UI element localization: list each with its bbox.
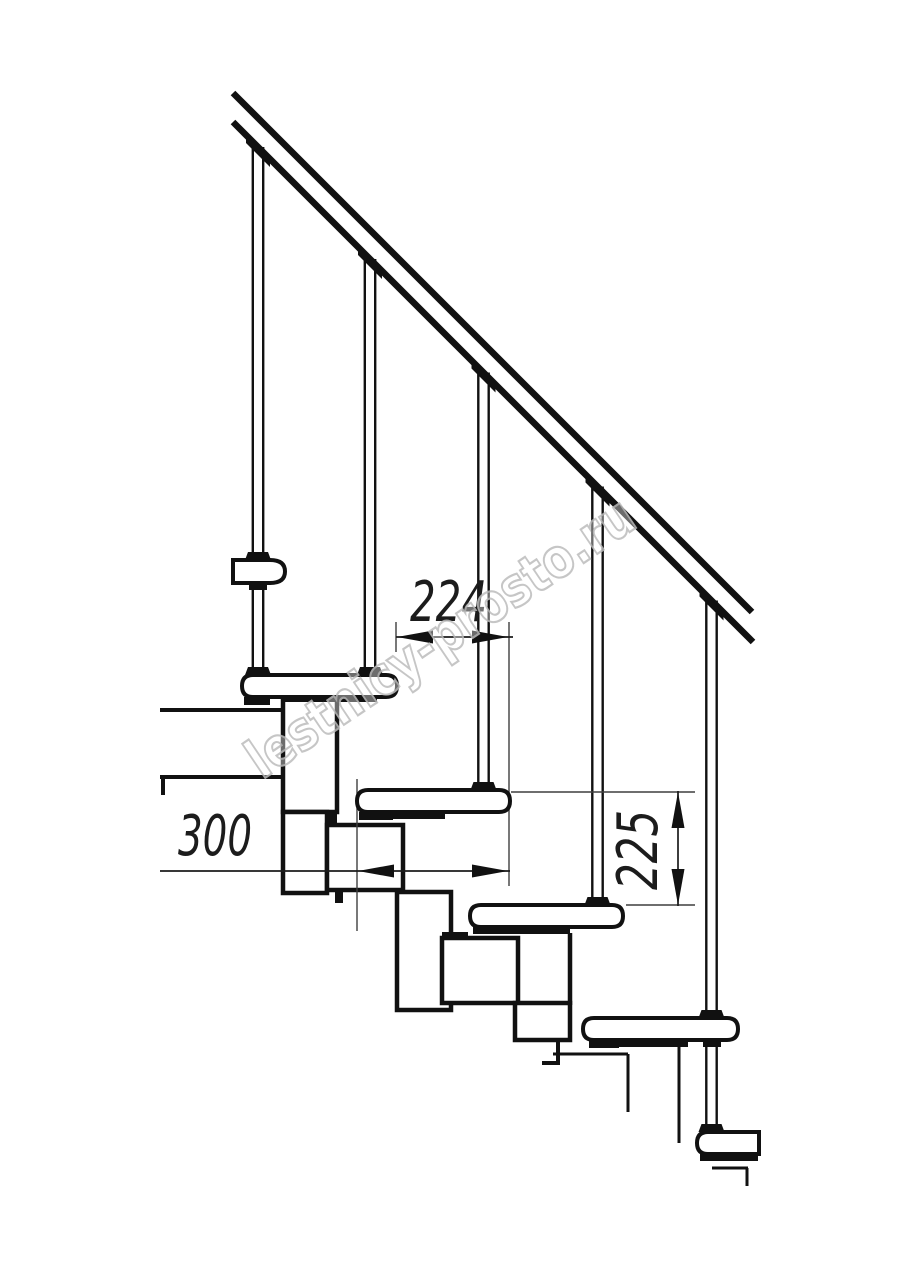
dimension-rise: 225 xyxy=(606,791,685,906)
tread-5 xyxy=(697,1132,759,1154)
tread-3 xyxy=(470,905,623,927)
module-box xyxy=(442,938,518,1003)
module-box xyxy=(515,1003,570,1040)
module-chain xyxy=(283,698,748,1186)
dimension-depth-label: 300 xyxy=(178,804,252,869)
arrowhead-right xyxy=(472,865,508,878)
watermark-text: lestnicy-prosto.ru xyxy=(234,484,646,791)
clamp xyxy=(471,782,497,790)
clamp xyxy=(703,1040,721,1047)
tread-2 xyxy=(357,790,510,812)
handrail-top-line xyxy=(233,93,752,612)
baluster-5 xyxy=(706,601,716,1133)
baluster-2 xyxy=(365,259,375,675)
upper-flight-tread xyxy=(233,560,285,583)
handrail xyxy=(233,93,753,642)
baluster-1 xyxy=(253,147,263,675)
tread-4 xyxy=(583,1018,738,1040)
clamp xyxy=(585,897,611,905)
dimension-rise-label: 225 xyxy=(606,810,671,890)
technical-drawing-page: 224 300 225 lestnicy-prosto.ru xyxy=(0,0,914,1280)
clamp xyxy=(249,583,267,590)
arrowhead-down xyxy=(672,869,685,905)
module-box xyxy=(327,825,403,890)
staircase-technical-drawing: 224 300 225 lestnicy-prosto.ru xyxy=(0,0,914,1280)
arrowhead-up xyxy=(672,792,685,828)
clamp xyxy=(699,1010,725,1018)
clamp xyxy=(245,667,271,675)
clamp xyxy=(699,1124,725,1132)
clamp xyxy=(245,552,271,560)
module-box xyxy=(283,812,327,893)
